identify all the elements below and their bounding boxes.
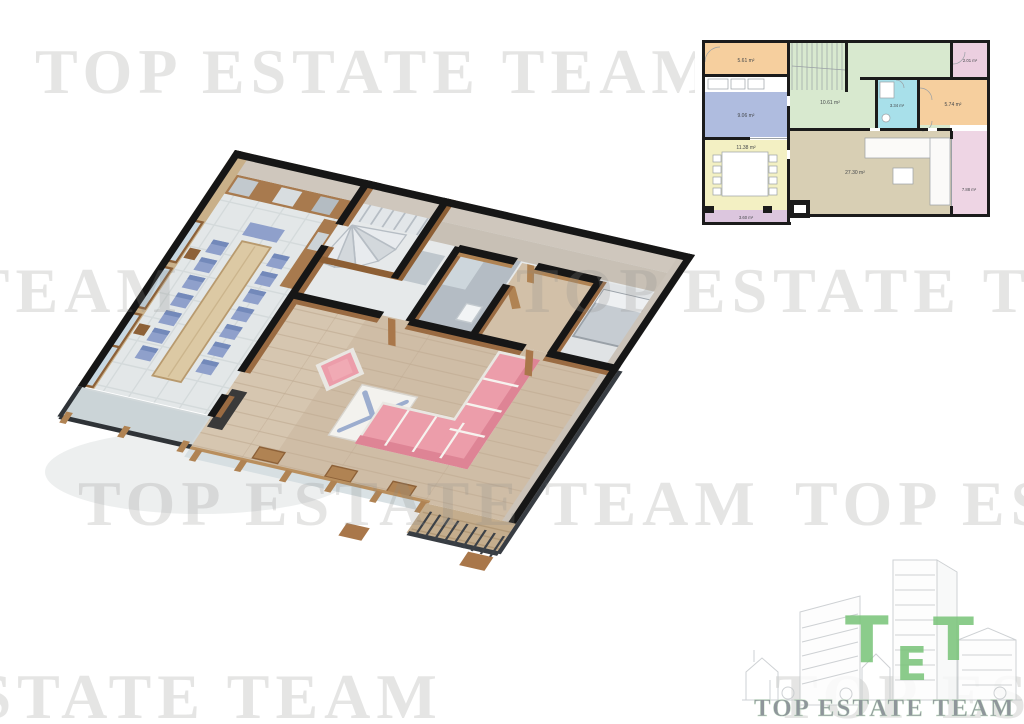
watermark-text: TOP ESTATE TEAM	[0, 661, 443, 724]
logo-name: TOP ESTATE TEAM	[754, 695, 1016, 722]
room-area-label: 5.61 m²	[738, 58, 755, 64]
logo-letter-t2: T	[933, 605, 974, 675]
scene: TOP ESTATE TEAM	[0, 0, 1024, 724]
logo: T E T TOP ESTATE TEAM	[742, 560, 1022, 722]
watermark-text: TOP ESTATE TEAM	[78, 468, 761, 539]
watermark-text: TOP ESTATE TEAM	[516, 255, 1024, 326]
room-area-label: 3.34 m²	[890, 103, 905, 108]
floorplan-2d: 5.61 m² 10.61 m² 2.01 m² 3.34 m² 5.74 m²…	[695, 32, 1016, 236]
floorplan-presentation: TOP ESTATE TEAM	[0, 0, 1024, 724]
room-area-label: 11.38 m²	[736, 145, 756, 151]
logo-letter-e: E	[896, 637, 927, 691]
room-area-label: 2.01 m²	[963, 58, 978, 63]
watermark-text: TOP ESTATE TEAM	[0, 255, 183, 326]
watermark-text: TOP ESTATE TEAM	[795, 468, 1024, 539]
watermark-text: TOP ESTATE TEAM	[35, 36, 718, 107]
room-area-label: 7.88 m²	[962, 187, 977, 192]
logo-letter-t1: T	[845, 604, 889, 678]
room-area-label: 5.74 m²	[945, 102, 962, 108]
room-area-label: 27.30 m²	[845, 170, 865, 176]
room-area-label: 9.06 m²	[738, 113, 755, 119]
room-terrace-right	[952, 131, 987, 214]
room-area-label: 3.60 m²	[739, 215, 754, 220]
room-area-label: 10.61 m²	[820, 100, 840, 106]
